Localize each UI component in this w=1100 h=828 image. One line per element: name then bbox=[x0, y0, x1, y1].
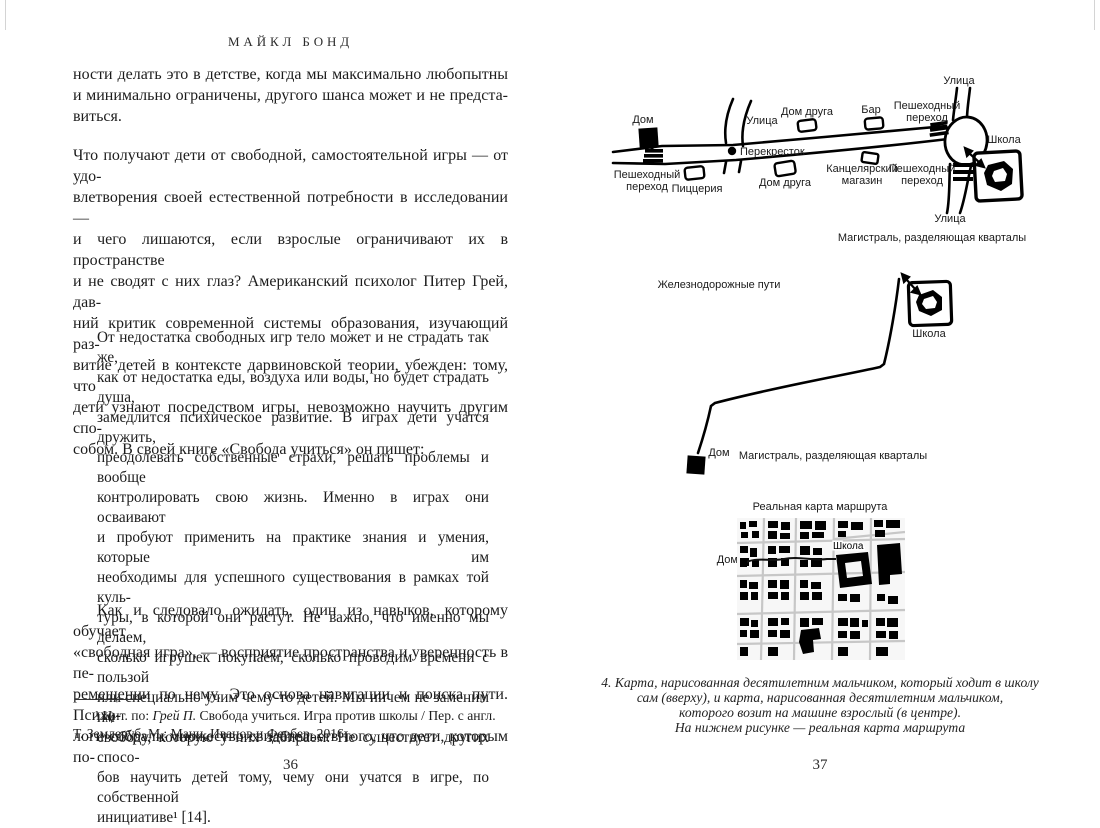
crosswalk-left bbox=[643, 149, 663, 163]
label-crossing-br-1: Пешеходный bbox=[889, 163, 956, 175]
text-line: Что получают дети от свободной, самостоя… bbox=[73, 145, 508, 187]
label-street-mid: Улица bbox=[746, 115, 778, 127]
text-line: влетворения своей естественной потребнос… bbox=[73, 187, 508, 229]
text-line: и пробуют применить на практике знания и… bbox=[97, 528, 489, 568]
hand-drawn-map-walking: Дом Улица Улица Улица Дом друга Бар Пеше… bbox=[605, 65, 1060, 250]
label-street-top: Улица bbox=[943, 75, 975, 87]
label-crossing-left-1: Пешеходный bbox=[614, 169, 681, 181]
text-line: которого возит на машине взрослый (в цен… bbox=[575, 705, 1065, 720]
text-line: инициативе¹ [14]. bbox=[97, 808, 489, 828]
page-edge-left bbox=[5, 0, 6, 30]
bar-marker bbox=[865, 117, 884, 130]
label-highway: Магистраль, разделяющая кварталы bbox=[838, 232, 1026, 244]
footnote-author: Грей П. bbox=[153, 708, 197, 723]
text-line: виться. bbox=[73, 106, 508, 127]
page-edge-right bbox=[1094, 0, 1095, 30]
text-line: 4. Карта, нарисованная десятилетним маль… bbox=[575, 675, 1065, 690]
real-city-map: Школа bbox=[737, 518, 905, 660]
text-line: Как и следовало ожидать, один из навыков… bbox=[73, 600, 508, 642]
paragraph-1: ности делать это в детстве, когда мы мак… bbox=[73, 64, 508, 127]
book-spread: { "book": { "running_header": "МАЙКЛ БОН… bbox=[0, 0, 1100, 825]
page-number-left: 36 bbox=[73, 757, 508, 774]
footnote-divider bbox=[75, 699, 142, 700]
home-marker bbox=[686, 455, 705, 474]
label-railways: Железнодорожные пути bbox=[658, 279, 781, 291]
label-intersection: Перекресток bbox=[740, 146, 805, 158]
footnote: ¹ Цит. по: Грей П. Свобода учиться. Игра… bbox=[73, 707, 508, 743]
label-school: Школа bbox=[833, 541, 864, 552]
label-crossing-tr-1: Пешеходный bbox=[894, 100, 961, 112]
road-top-edge2 bbox=[967, 88, 970, 119]
page-number-right: 37 bbox=[600, 757, 1040, 774]
running-header: МАЙКЛ БОНД bbox=[73, 34, 508, 50]
label-school: Школа bbox=[987, 134, 1021, 146]
road-curve-edge1 bbox=[725, 99, 733, 143]
crosswalk-bottom-right bbox=[953, 163, 974, 181]
text-line: контролировать свою жизнь. Именно в игра… bbox=[97, 488, 489, 528]
text-line: замедлится психическое развитие. В играх… bbox=[97, 408, 489, 448]
label-home: Дом bbox=[708, 447, 729, 459]
real-map-title: Реальная карта маршрута bbox=[690, 501, 950, 513]
text-line: ности делать это в детстве, когда мы мак… bbox=[73, 64, 508, 85]
label-stationery-2: магазин bbox=[842, 175, 883, 187]
label-stationery-1: Канцелярский bbox=[826, 163, 898, 175]
road-stub1 bbox=[724, 162, 726, 173]
footnote-marker-text: ¹ Цит. по: bbox=[95, 708, 153, 723]
text-line: От недостатка свободных игр тело может и… bbox=[97, 328, 489, 368]
footnote-line-1-rest: Свобода учиться. Игра против школы / Пер… bbox=[196, 708, 495, 723]
friend-house-top-marker bbox=[797, 119, 816, 132]
label-friend-house-bottom: Дом друга bbox=[759, 177, 812, 189]
label-bar: Бар bbox=[861, 104, 880, 116]
label-home: Дом bbox=[632, 114, 653, 126]
text-line: «свободная игра», — восприятие пространс… bbox=[73, 642, 508, 684]
text-line: преодолевать собственные страхи, решать … bbox=[97, 448, 489, 488]
text-line: На нижнем рисунке — реальная карта маршр… bbox=[575, 720, 1065, 735]
text-line: как от недостатка еды, воздуха или воды,… bbox=[97, 368, 489, 408]
text-line: и минимально ограничены, другого шанса м… bbox=[73, 85, 508, 106]
label-crossing-left-2: переход bbox=[626, 181, 668, 193]
pizzeria-marker bbox=[684, 166, 704, 180]
text-line: сам (вверху), и карта, нарисованная деся… bbox=[575, 690, 1065, 705]
real-map-home-label: Дом bbox=[708, 554, 738, 566]
footnote-line-1: ¹ Цит. по: Грей П. Свобода учиться. Игра… bbox=[73, 707, 508, 725]
label-school: Школа bbox=[912, 328, 946, 340]
label-street-bottom: Улица bbox=[934, 213, 966, 225]
hand-drawn-map-driven: Железнодорожные пути Школа Дом Магистрал… bbox=[620, 270, 960, 485]
label-pizzeria: Пиццерия bbox=[672, 183, 723, 195]
label-friend-house-top: Дом друга bbox=[781, 106, 834, 118]
home-marker bbox=[740, 560, 747, 567]
label-highway: Магистраль, разделяющая кварталы bbox=[739, 450, 927, 462]
text-line: и не сводят с них глаз? Американский пси… bbox=[73, 271, 508, 313]
text-line: бов научить детей тому, чему они учатся … bbox=[97, 768, 489, 808]
figure-caption: 4. Карта, нарисованная десятилетним маль… bbox=[575, 675, 1065, 735]
friend-house-bottom-marker bbox=[774, 161, 796, 177]
label-crossing-tr-2: переход bbox=[906, 112, 948, 124]
intersection-dot bbox=[728, 147, 736, 155]
route-line bbox=[698, 279, 899, 453]
school-building bbox=[974, 151, 1022, 201]
road-stub2 bbox=[739, 161, 741, 172]
home-marker bbox=[638, 127, 658, 147]
label-crossing-br-2: переход bbox=[901, 175, 943, 187]
footnote-line-2: Т. Землеруб. М.: Манн, Иванов и Фербер, … bbox=[73, 725, 508, 743]
text-line: и чего лишаются, если взрослые ограничив… bbox=[73, 229, 508, 271]
